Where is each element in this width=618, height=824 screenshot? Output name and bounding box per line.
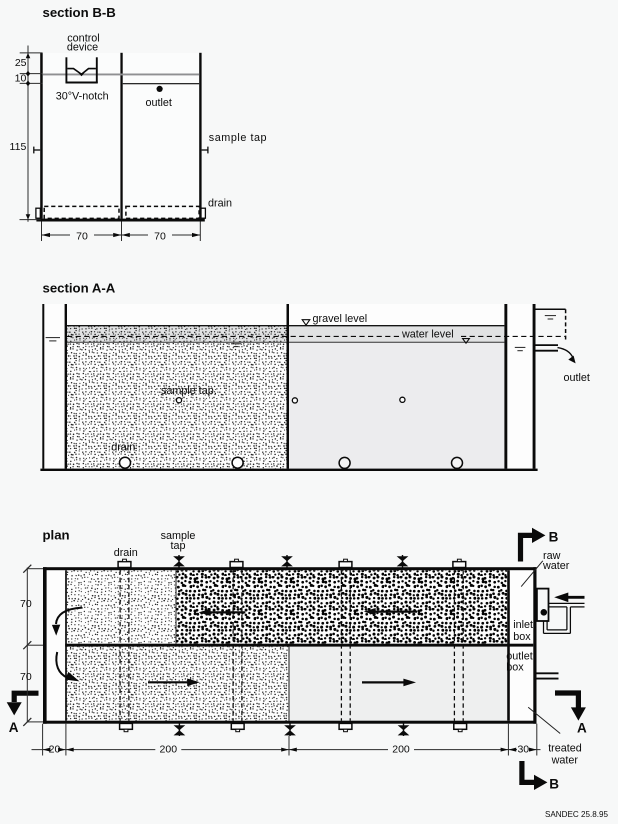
svg-text:70: 70	[20, 671, 32, 683]
svg-text:section B-B: section B-B	[43, 5, 116, 20]
svg-text:70: 70	[154, 231, 166, 243]
svg-text:section A-A: section A-A	[43, 280, 116, 295]
svg-text:treated: treated	[548, 742, 582, 754]
svg-text:SANDEC 25.8.95: SANDEC 25.8.95	[545, 810, 608, 819]
svg-text:B: B	[549, 529, 559, 544]
svg-text:inlet: inlet	[513, 619, 533, 631]
svg-text:device: device	[67, 42, 98, 54]
svg-text:200: 200	[160, 744, 178, 756]
svg-text:tap: tap	[170, 540, 185, 552]
svg-text:30: 30	[517, 744, 529, 756]
svg-text:box: box	[513, 631, 531, 643]
svg-text:drain: drain	[208, 198, 232, 210]
svg-text:25: 25	[15, 57, 27, 69]
svg-text:gravel level: gravel level	[313, 313, 368, 325]
svg-text:115: 115	[10, 141, 27, 153]
svg-text:A: A	[9, 720, 19, 735]
svg-text:water: water	[551, 754, 579, 766]
svg-text:outlet: outlet	[506, 650, 532, 662]
svg-text:plan: plan	[43, 527, 70, 542]
svg-text:sample tap.: sample tap.	[161, 385, 217, 397]
svg-text:box: box	[506, 662, 524, 674]
svg-text:drain: drain	[111, 442, 135, 454]
svg-text:sample tap: sample tap	[209, 132, 267, 144]
svg-text:outlet: outlet	[564, 372, 590, 384]
svg-text:water: water	[542, 560, 570, 572]
svg-text:10: 10	[15, 73, 27, 85]
svg-text:200: 200	[392, 744, 410, 756]
svg-text:30°V-notch: 30°V-notch	[56, 90, 109, 102]
svg-text:outlet: outlet	[146, 97, 172, 109]
svg-text:water level: water level	[401, 329, 454, 341]
svg-text:70: 70	[20, 598, 32, 610]
svg-text:B: B	[549, 776, 559, 791]
svg-text:70: 70	[76, 231, 88, 243]
svg-text:A: A	[577, 720, 587, 735]
svg-text:drain: drain	[114, 547, 138, 559]
